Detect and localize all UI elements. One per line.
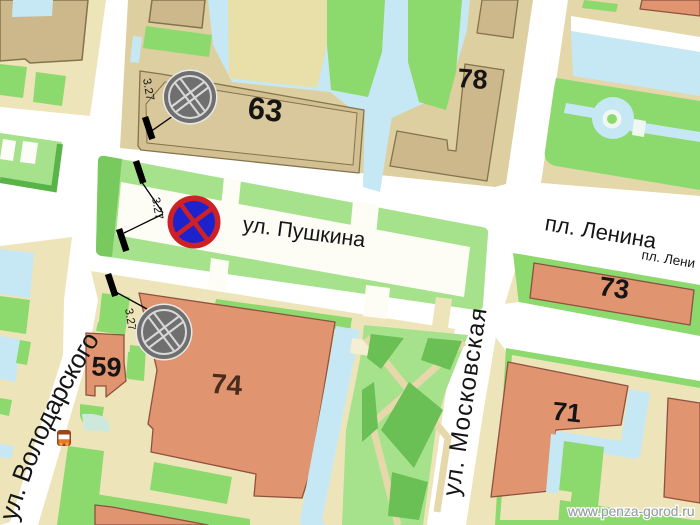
svg-text:71: 71 — [551, 396, 583, 429]
svg-text:73: 73 — [597, 271, 631, 305]
svg-text:74: 74 — [210, 368, 244, 401]
svg-text:www.penza-gorod.ru: www.penza-gorod.ru — [567, 504, 695, 519]
svg-text:78: 78 — [457, 63, 489, 95]
svg-text:63: 63 — [246, 90, 284, 129]
